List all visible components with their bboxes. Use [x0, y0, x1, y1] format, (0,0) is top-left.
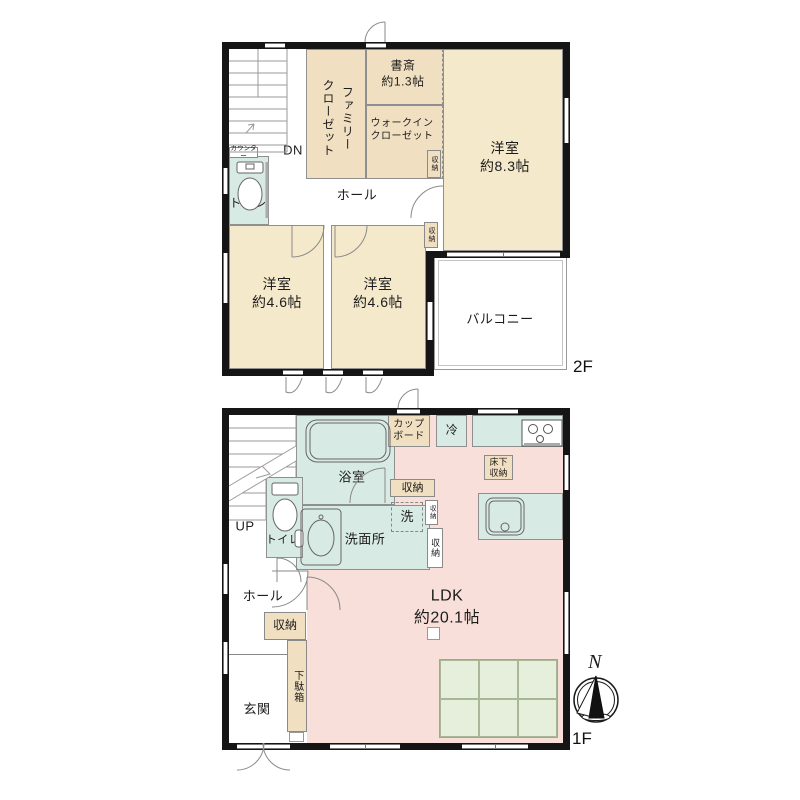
label-cupboard: カップ ボード — [393, 419, 425, 443]
floor-label-1f: 1F — [572, 729, 592, 749]
storage-top-1f: 収納 — [390, 479, 435, 497]
compass-icon — [574, 676, 618, 722]
ldk-square-marker — [427, 627, 440, 640]
window-1f-right-2 — [564, 592, 569, 654]
storage-mini-1f: 収納 — [425, 500, 438, 525]
label-walkin-closet: ウォークイン クローゼット — [371, 117, 434, 143]
storage-hall-1f: 収納 — [264, 612, 306, 640]
window-1f-top-kitchen — [478, 409, 518, 414]
door-gap-1f-top — [397, 409, 420, 414]
window-2f-left-1 — [223, 168, 228, 194]
window-2f-right — [564, 98, 569, 143]
stairs-2f — [229, 49, 287, 152]
label-bedroom-left: 洋室 約4.6帖 — [252, 275, 302, 311]
room-toilet-2f — [229, 156, 269, 225]
entrance-step — [289, 732, 304, 742]
label-hall-1f: ホール — [243, 589, 284, 606]
label-bath: 浴室 — [338, 470, 365, 487]
window-2f-balcony-left — [427, 302, 433, 340]
label-bedroom-right: 洋室 約4.6帖 — [353, 275, 403, 311]
window-tick — [365, 744, 366, 749]
storage-box-mid-2f: 収納 — [424, 222, 438, 248]
window-1f-right-1 — [564, 455, 569, 490]
window-2f-bottom-1 — [283, 370, 303, 375]
label-ldk: LDK 約20.1帖 — [414, 585, 480, 628]
window-2f-bottom-2 — [323, 370, 343, 375]
shoe-cabinet-1f: 下駄箱 — [287, 640, 307, 732]
label-entrance: 玄関 — [243, 702, 270, 719]
door-gap-2f-top — [366, 43, 386, 48]
compass-north-label: N — [588, 649, 602, 675]
label-toilet-2f: トイレ — [229, 196, 267, 212]
label-family-closet: ファミリー クローゼット — [318, 79, 356, 157]
window-tick — [495, 744, 496, 749]
island-counter-1f — [478, 493, 563, 540]
window-1f-left-1 — [223, 564, 228, 594]
washer-1f: 洗 — [391, 502, 423, 532]
window-2f-bottom-3 — [363, 370, 383, 375]
label-study: 書斎 約1.3帖 — [381, 58, 424, 89]
tatami-corner-1f — [439, 659, 558, 738]
floorplan-canvas: 収納 収納 カウンター 書斎 約1.3帖 ファミリー クローゼット ウォークイン… — [0, 0, 800, 800]
room-bath-1f — [296, 415, 395, 505]
wall-2f-left — [222, 42, 229, 376]
window-2f-left-2 — [223, 253, 228, 303]
wall-2f-right — [563, 42, 570, 258]
underfloor-storage-1f: 床下 収納 — [484, 455, 513, 480]
floor-label-2f: 2F — [573, 357, 593, 377]
label-washroom: 洗面所 — [345, 532, 386, 549]
window-tick — [503, 252, 504, 257]
label-bedroom-main: 洋室 約8.3帖 — [480, 139, 530, 175]
north-needle-outline — [577, 676, 596, 718]
north-needle — [589, 676, 604, 718]
kitchen-counter-1f — [472, 415, 563, 447]
entrance-door-gap — [237, 744, 290, 749]
label-fridge: 冷 — [446, 423, 459, 439]
label-balcony: バルコニー — [466, 312, 533, 329]
hall-entrance-divider — [229, 654, 287, 655]
label-toilet-1f: トイレ — [266, 533, 301, 547]
label-hall-2f: ホール — [337, 188, 378, 205]
counter-box-2f: カウンター — [229, 147, 258, 158]
storage-side-1f: 収納 — [427, 528, 443, 568]
window-1f-left-2 — [223, 642, 228, 674]
window-2f-top — [265, 43, 285, 48]
label-up: UP — [235, 519, 254, 536]
storage-box-wic-2f: 収納 — [427, 150, 441, 178]
label-dn: DN — [283, 143, 303, 160]
